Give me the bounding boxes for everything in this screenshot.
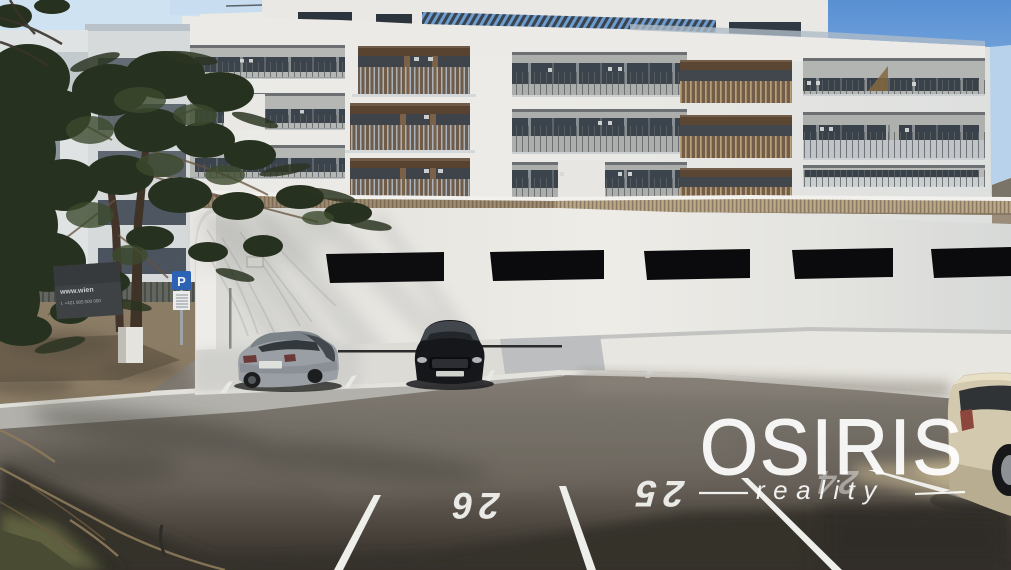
svg-text:26: 26 — [442, 485, 502, 527]
svg-text:reality: reality — [756, 475, 885, 505]
svg-text:25: 25 — [624, 473, 688, 515]
svg-text:P: P — [177, 274, 186, 289]
